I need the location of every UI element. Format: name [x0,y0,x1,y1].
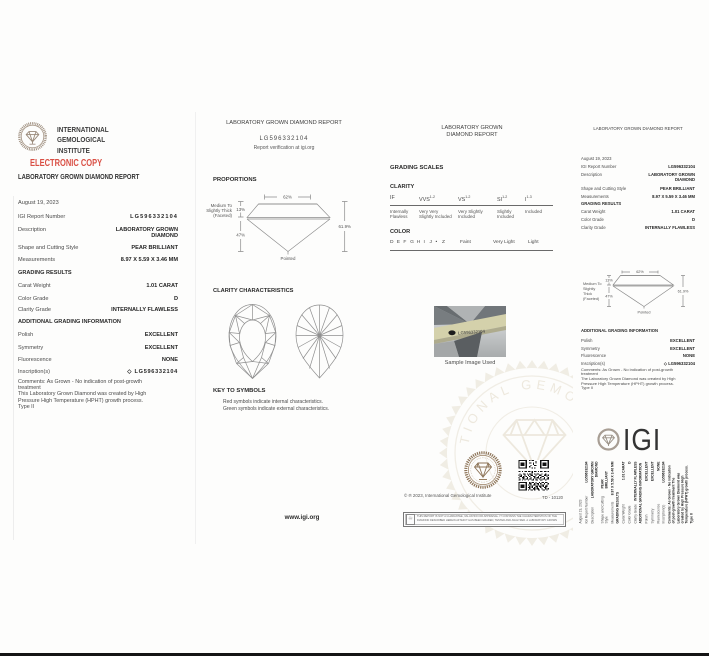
svg-text:Pointed: Pointed [281,256,296,261]
svg-text:13%: 13% [236,207,245,212]
svg-text:62%: 62% [636,270,644,274]
svg-text:13%: 13% [605,278,613,282]
svg-text:47%: 47% [236,233,245,238]
svg-text:61.9%: 61.9% [338,224,351,229]
svg-text:Medium To: Medium To [583,282,602,286]
svg-text:(Faceted): (Faceted) [213,213,232,218]
svg-text:62%: 62% [283,195,292,200]
svg-text:61.9%: 61.9% [678,289,689,293]
svg-text:47%: 47% [605,294,613,298]
svg-text:Thick: Thick [583,292,592,296]
svg-text:Pointed: Pointed [638,311,651,315]
svg-text:Slightly: Slightly [583,287,595,291]
svg-text:(Faceted): (Faceted) [583,297,600,301]
